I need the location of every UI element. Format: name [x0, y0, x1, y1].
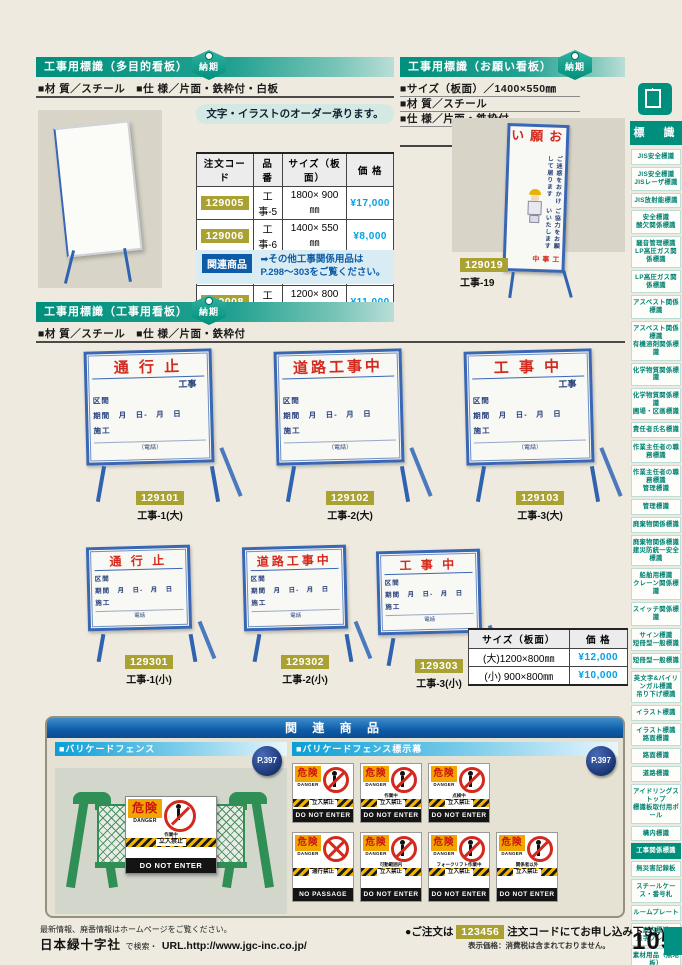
sign-main-text: お願い	[512, 128, 565, 156]
sidebar-item: 安全標識 酸欠関係標識	[631, 210, 681, 234]
order-code-sample: 123456	[456, 925, 504, 939]
sidebar-item: 短冊型一般標識	[631, 653, 681, 669]
sign-stand: 通 行 止 工事 区間 期間 月 日- 月 日 施工 （電話）	[85, 350, 235, 502]
section-title: 工事用標識（多目的看板）	[44, 61, 188, 73]
model: 工事-5	[253, 187, 282, 220]
related-goods-chip: 関連商品	[202, 254, 252, 273]
sidebar-item: 廃棄物関係標識	[631, 517, 681, 533]
sidebar-item: 責任者氏名標識	[631, 422, 681, 438]
sidebar-item: JIS放射能標識	[631, 193, 681, 209]
product-sign-2-small: 道路工事中 区間 期間 月 日- 月 日 施工 電話 129302 工事-2(小…	[238, 546, 372, 686]
sign-title: 工 事 中	[472, 355, 585, 380]
clock-icon	[205, 297, 213, 305]
sidebar-item: JIS安全標識	[631, 149, 681, 165]
price: ¥10,000	[569, 667, 627, 686]
company-url: URL.http://www.jgc-inc.co.jp/	[162, 940, 307, 952]
sign-title: 道路工事中	[250, 551, 338, 571]
sidebar-item: スイッチ関係標識	[631, 602, 681, 626]
table-header-row: サイズ（板面） 価 格	[469, 629, 628, 649]
page-ref-badge: P.397	[252, 746, 282, 776]
no-entry-icon	[391, 836, 417, 862]
order-code: 129019	[460, 258, 508, 272]
section-header-onegai: 工事用標識（お願い看板） 納期	[400, 57, 625, 77]
sidebar-item: イラスト標識	[631, 705, 681, 721]
sign-stand: 通 行 止 区間 期間 月 日- 月 日 施工 電話	[87, 546, 211, 662]
sidebar-item: サイン標識 短冊型一般標識	[631, 628, 681, 652]
danger-sign-card: 危険DANGER フォークリフト作業中 立入禁止 DO NOT ENTER	[428, 832, 490, 902]
sidebar-item: 道路標識	[631, 766, 681, 782]
sidebar-item: 無災害記録板	[631, 861, 681, 877]
sidebar-item: スチールケース・番号札	[631, 879, 681, 903]
danger-sign-card: 危険DANGER 関係者以外 立入禁止 DO NOT ENTER	[496, 832, 558, 902]
danger-sign-card: 危険DANGER 点検中 立入禁止 DO NOT ENTER	[428, 763, 490, 823]
sidebar-item: 船舶用標識 クレーン関係標識	[631, 568, 681, 600]
page-number-marker	[664, 927, 682, 955]
stand-leg	[123, 248, 132, 282]
sign-stand: 工 事 中 工事 区間 期間 月 日- 月 日 施工 （電話）	[465, 350, 615, 502]
spec-size: ■サイズ（板面）／1400×550㎜	[400, 81, 580, 97]
spec-material: ■材 質／スチール	[400, 96, 580, 112]
sign-title: 工 事 中	[384, 555, 472, 575]
catalog-page: 工事用標識（多目的看板） 納期 ■材 質／スチール ■仕 様／片面・鉄枠付・白板…	[0, 0, 682, 965]
company-name: 日本緑十字社	[40, 938, 121, 952]
sign-title: 通 行 止	[94, 551, 182, 571]
product-sign-1-small: 通 行 止 区間 期間 月 日- 月 日 施工 電話 129301 工事-1(小…	[82, 546, 216, 686]
sign-side-text: 工事中	[508, 254, 560, 268]
sidebar-header: 標 識	[630, 121, 682, 145]
sidebar-item: 化学物質関係標識	[631, 363, 681, 387]
sidebar-item: 路面標識	[631, 748, 681, 764]
no-entry-icon	[323, 767, 349, 793]
clock-icon	[205, 52, 213, 60]
delivery-badge: 納期	[558, 50, 592, 80]
divider	[36, 96, 394, 98]
sidebar-item: 化学物質関係標識 圃場・区画標識	[631, 388, 681, 420]
kiken-label: 危険	[128, 799, 162, 818]
model: 工事-2(小)	[238, 671, 372, 686]
product-sign-2-large: 道路工事中 区間 期間 月 日- 月 日 施工 （電話） 129102 工事-2…	[270, 350, 430, 522]
worker-illustration	[525, 189, 544, 224]
no-entry-icon	[527, 836, 553, 862]
model: 工事-2(大)	[270, 507, 430, 522]
price: ¥17,000	[347, 187, 394, 220]
sidebar-item: 廃棄物関係標識 建災防統一安全標識	[631, 535, 681, 567]
sidebar-item: JIS安全標識 JISレーザ標識	[631, 167, 681, 191]
barricade-fence-photo: 危険 DANGER 作業中 立入禁止 DO NOT ENTER	[55, 768, 287, 914]
model: 工事-6	[253, 220, 282, 253]
size: 1800× 900㎜	[282, 187, 347, 220]
section-title: 工事用標識（お願い看板）	[408, 61, 552, 73]
tax-note: 表示価格：消費税は含まれておりません。	[468, 940, 610, 951]
sidebar-item: 英文字&バイリンガル標識 吊り下げ標識	[631, 671, 681, 703]
section-header-kouji: 工事用標識（工事用看板） 納期	[36, 302, 394, 322]
danger-sign-card: 危険DANGER 作業中 立入禁止 DO NOT ENTER	[360, 763, 422, 823]
sidebar-item: アスベスト関係標識	[631, 295, 681, 319]
product-photo-whiteboard	[38, 110, 162, 288]
divider	[36, 341, 625, 343]
subsection-fence-banner: ■バリケードフェンス標示幕	[292, 742, 618, 756]
sidebar-item: 騒音管理標識 LP高圧ガス関係標識	[631, 236, 681, 268]
model: 工事-3(大)	[460, 507, 620, 522]
model: 工事-1(大)	[80, 507, 240, 522]
sidebar-item: 管理標識	[631, 499, 681, 515]
sign-title: 道路工事中	[282, 355, 395, 380]
footer-company-line: 日本緑十字社 で検索・ URL.http://www.jgc-inc.co.jp…	[40, 934, 307, 954]
no-passage-icon	[323, 836, 349, 862]
note-text: ➡その他工事関係用品は P.298～303をご覧ください。	[260, 254, 385, 280]
whiteboard	[53, 120, 142, 257]
sidebar-item: アスベスト関係標識 有機溶剤関係標識	[631, 321, 681, 360]
page-ref-badge: P.397	[586, 746, 616, 776]
sign-stand: 道路工事中 区間 期間 月 日- 月 日 施工 電話	[243, 546, 367, 662]
sign-stand: 道路工事中 区間 期間 月 日- 月 日 施工 （電話）	[275, 350, 425, 502]
section-header-multi: 工事用標識（多目的看板） 納期	[36, 57, 394, 77]
size: (大)1200×800㎜	[469, 649, 570, 667]
danger-sign-card: 危険DANGER 可動範囲内 立入禁止 DO NOT ENTER	[360, 832, 422, 902]
order-code: 129005	[201, 196, 249, 210]
table-row: 129006 工事-6 1400× 550㎜ ¥8,000	[197, 220, 394, 253]
sidebar-item: アイドリングストップ 標識板取付用ポール	[631, 784, 681, 823]
fence-danger-sign: 危険 DANGER 作業中 立入禁止 DO NOT ENTER	[125, 796, 217, 874]
price-table-kouji: サイズ（板面） 価 格 (大)1200×800㎜ ¥12,000 (小) 900…	[468, 628, 628, 686]
price: ¥12,000	[569, 649, 627, 667]
related-goods-banner: 関 連 商 品	[47, 718, 623, 738]
stand-leg	[508, 272, 515, 298]
col-price: 価 格	[347, 153, 394, 187]
col-order-code: 注文コード	[197, 153, 254, 187]
order-instruction: ●ご注文は 123456 注文コードにてお申し込み下さい	[405, 924, 664, 939]
no-entry-icon	[459, 767, 485, 793]
model: 工事-19	[460, 274, 508, 289]
no-entry-icon	[164, 800, 196, 832]
related-goods-note: 関連商品 ➡その他工事関係用品は P.298～303をご覧ください。	[196, 250, 394, 284]
sidebar-item-active: 工事関係標識	[631, 843, 681, 859]
stand-leg	[562, 270, 573, 298]
col-price: 価 格	[569, 629, 627, 649]
product-label: 129019 工事-19	[460, 255, 508, 289]
sidebar-item: 作業主任者の職務標識 管理標識	[631, 465, 681, 497]
table-header-row: 注文コード 品 番 サイズ（板面） 価 格	[197, 153, 394, 187]
spec-material: ■材 質／スチール ■仕 様／片面・鉄枠付・白板	[38, 81, 279, 96]
danger-sign-card: 危険DANGER 通行禁止 NO PASSAGE	[292, 832, 354, 902]
table-row: (大)1200×800㎜ ¥12,000	[469, 649, 628, 667]
col-model: 品 番	[253, 153, 282, 187]
subsection-barricade-fence: ■バリケードフェンス	[55, 742, 287, 756]
sidebar-list: JIS安全標識 JIS安全標識 JISレーザ標識 JIS放射能標識 安全標識 酸…	[631, 149, 681, 965]
sidebar-item: イラスト標識 路面標識	[631, 723, 681, 747]
model: 工事-1(小)	[82, 671, 216, 686]
delivery-badge: 納期	[192, 50, 226, 80]
price: ¥8,000	[347, 220, 394, 253]
do-not-enter-band: DO NOT ENTER	[126, 858, 216, 873]
order-code: 129006	[201, 229, 249, 243]
no-entry-icon	[459, 836, 485, 862]
price-table-multi: 注文コード 品 番 サイズ（板面） 価 格 129005 工事-5 1800× …	[196, 152, 394, 320]
col-size: サイズ（板面）	[282, 153, 347, 187]
size: 1400× 550㎜	[282, 220, 347, 253]
sidebar-item: ルームプレート	[631, 905, 681, 921]
sidebar-item: 構内標識	[631, 826, 681, 842]
clock-icon	[571, 52, 579, 60]
sidebar-item: LP高圧ガス関係標識	[631, 270, 681, 294]
size: (小) 900×800㎜	[469, 667, 570, 686]
sign-category-icon: ＋	[638, 83, 672, 115]
col-size: サイズ（板面）	[469, 629, 570, 649]
sidebar-item: 作業主任者の職務標識	[631, 440, 681, 464]
onegai-sign: お願い ご迷惑をおかけして居ります ご協力をお願いいたします 工事中	[502, 123, 569, 273]
product-sign-1-large: 通 行 止 工事 区間 期間 月 日- 月 日 施工 （電話） 129101 工…	[80, 350, 240, 522]
danger-sign-card: 危険DANGER 立入禁止 DO NOT ENTER	[292, 763, 354, 823]
table-row: 129005 工事-5 1800× 900㎜ ¥17,000	[197, 187, 394, 220]
table-row: (小) 900×800㎜ ¥10,000	[469, 667, 628, 686]
spec-material: ■材 質／スチール ■仕 様／片面・鉄枠付	[38, 326, 246, 341]
product-sign-3-large: 工 事 中 工事 区間 期間 月 日- 月 日 施工 （電話） 129103 工…	[460, 350, 620, 522]
custom-order-banner: 文字・イラストのオーダー承ります。	[196, 104, 394, 124]
sign-title: 通 行 止	[92, 355, 205, 380]
no-entry-icon	[391, 767, 417, 793]
section-title: 工事用標識（工事用看板）	[44, 306, 188, 318]
